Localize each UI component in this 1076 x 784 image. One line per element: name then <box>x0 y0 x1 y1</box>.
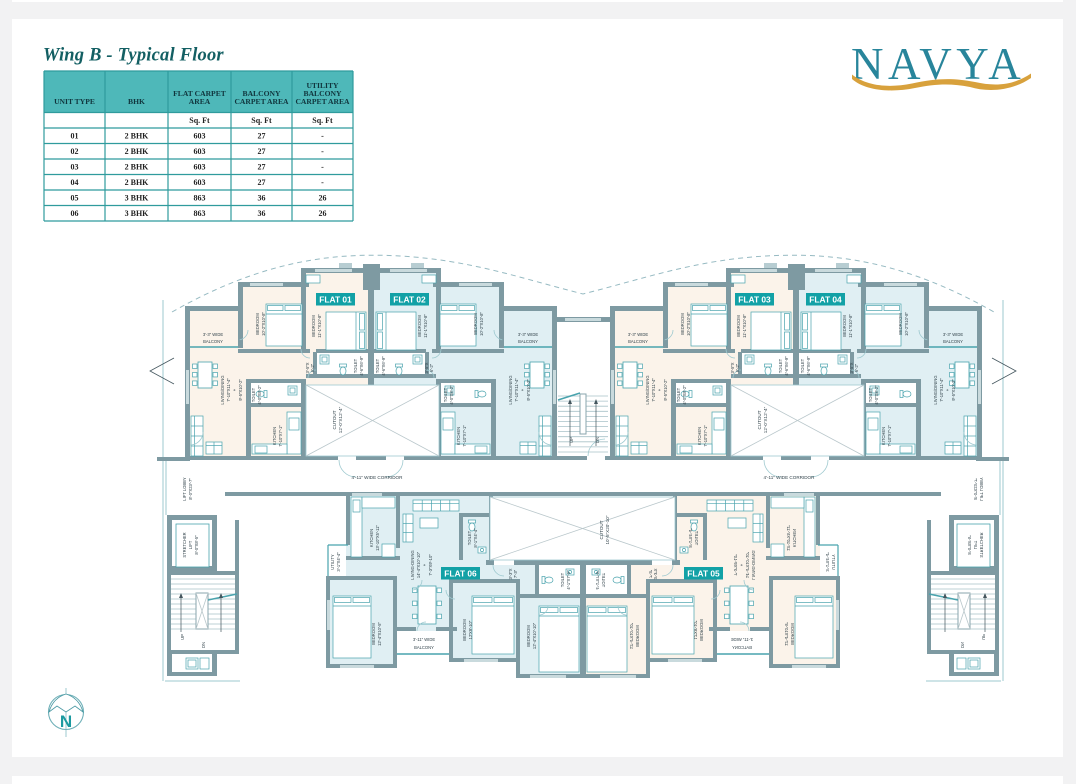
svg-text:04: 04 <box>71 178 79 187</box>
svg-text:10′-5″X20′-10″: 10′-5″X20′-10″ <box>605 515 610 544</box>
svg-text:27: 27 <box>258 162 266 171</box>
svg-text:26: 26 <box>319 209 327 218</box>
svg-text:UNIT TYPE: UNIT TYPE <box>54 97 95 106</box>
svg-text:2 BHK: 2 BHK <box>125 162 150 171</box>
svg-text:FLAT 06: FLAT 06 <box>444 569 477 579</box>
svg-text:UP: UP <box>569 437 574 443</box>
svg-text:863: 863 <box>194 209 206 218</box>
svg-text:4′-11″ WIDE CORRIDOR: 4′-11″ WIDE CORRIDOR <box>764 475 816 480</box>
svg-text:603: 603 <box>194 131 206 140</box>
svg-text:27: 27 <box>258 178 266 187</box>
svg-text:01: 01 <box>71 131 79 140</box>
svg-text:863: 863 <box>194 193 206 202</box>
svg-text:06: 06 <box>71 209 79 218</box>
svg-text:36: 36 <box>258 193 266 202</box>
svg-text:4′-11″ WIDE CORRIDOR: 4′-11″ WIDE CORRIDOR <box>352 475 404 480</box>
svg-text:05: 05 <box>71 193 79 202</box>
svg-text:603: 603 <box>194 178 206 187</box>
svg-text:02: 02 <box>71 147 79 156</box>
svg-text:N: N <box>60 712 72 731</box>
svg-text:-: - <box>321 178 324 187</box>
svg-text:3 BHK: 3 BHK <box>125 209 150 218</box>
svg-text:03: 03 <box>71 162 79 171</box>
svg-text:36: 36 <box>258 209 266 218</box>
svg-text:Sq. Ft: Sq. Ft <box>189 116 210 125</box>
svg-text:CARPET AREA: CARPET AREA <box>234 97 289 106</box>
svg-text:-: - <box>321 147 324 156</box>
svg-text:Wing B - Typical Floor: Wing B - Typical Floor <box>43 46 224 66</box>
svg-text:603: 603 <box>194 147 206 156</box>
svg-text:2 BHK: 2 BHK <box>125 147 150 156</box>
svg-text:AREA: AREA <box>189 97 211 106</box>
svg-text:603: 603 <box>194 162 206 171</box>
svg-text:2 BHK: 2 BHK <box>125 178 150 187</box>
svg-text:2 BHK: 2 BHK <box>125 131 150 140</box>
svg-text:FLAT 01: FLAT 01 <box>319 295 352 305</box>
svg-text:BHK: BHK <box>128 97 145 106</box>
svg-text:3 BHK: 3 BHK <box>125 193 150 202</box>
svg-text:CARPET AREA: CARPET AREA <box>295 97 350 106</box>
svg-text:DN: DN <box>595 437 600 443</box>
svg-text:-: - <box>321 162 324 171</box>
svg-text:27: 27 <box>258 147 266 156</box>
svg-text:26: 26 <box>319 193 327 202</box>
svg-text:FLAT 04: FLAT 04 <box>809 295 842 305</box>
svg-text:FLAT 03: FLAT 03 <box>738 295 771 305</box>
svg-text:Sq. Ft: Sq. Ft <box>312 116 333 125</box>
svg-text:FLAT 02: FLAT 02 <box>393 295 426 305</box>
svg-text:27: 27 <box>258 131 266 140</box>
svg-text:Sq. Ft: Sq. Ft <box>251 116 272 125</box>
svg-text:FLAT 05: FLAT 05 <box>687 569 720 579</box>
svg-text:CUTOUT: CUTOUT <box>599 520 604 539</box>
svg-text:-: - <box>321 131 324 140</box>
